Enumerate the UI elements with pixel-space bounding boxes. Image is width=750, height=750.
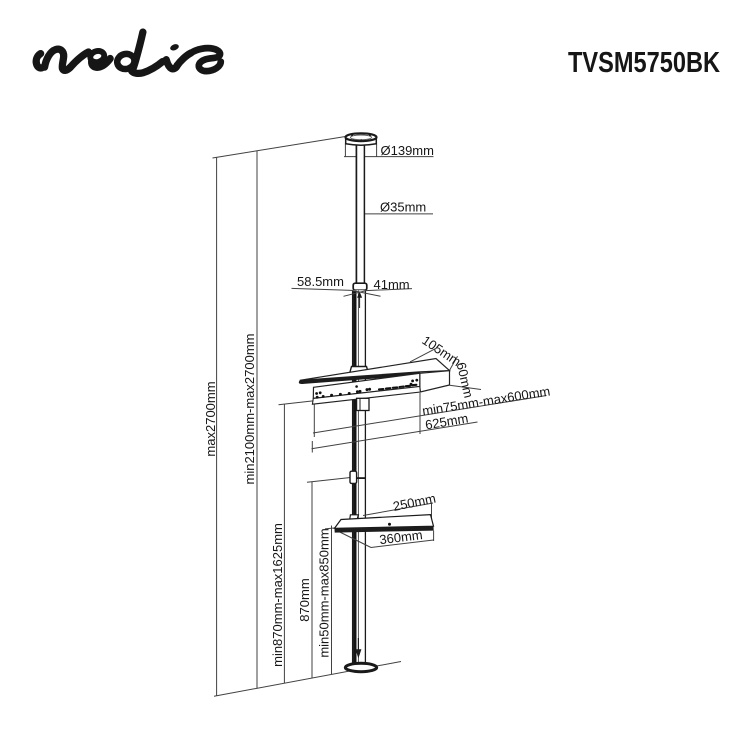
svg-text:min870mm-max1625mm: min870mm-max1625mm (270, 523, 285, 667)
svg-text:870mm: 870mm (297, 578, 312, 621)
svg-text:min2100mm-max2700mm: min2100mm-max2700mm (242, 334, 257, 485)
svg-text:Ø139mm: Ø139mm (381, 143, 434, 158)
svg-text:58.5mm: 58.5mm (297, 274, 344, 289)
svg-text:Ø35mm: Ø35mm (380, 200, 426, 215)
svg-text:max2700mm: max2700mm (203, 381, 218, 456)
svg-text:41mm: 41mm (374, 277, 410, 292)
svg-text:TVSM5750BK: TVSM5750BK (568, 47, 720, 79)
svg-text:min50mm-max850mm: min50mm-max850mm (317, 528, 332, 657)
